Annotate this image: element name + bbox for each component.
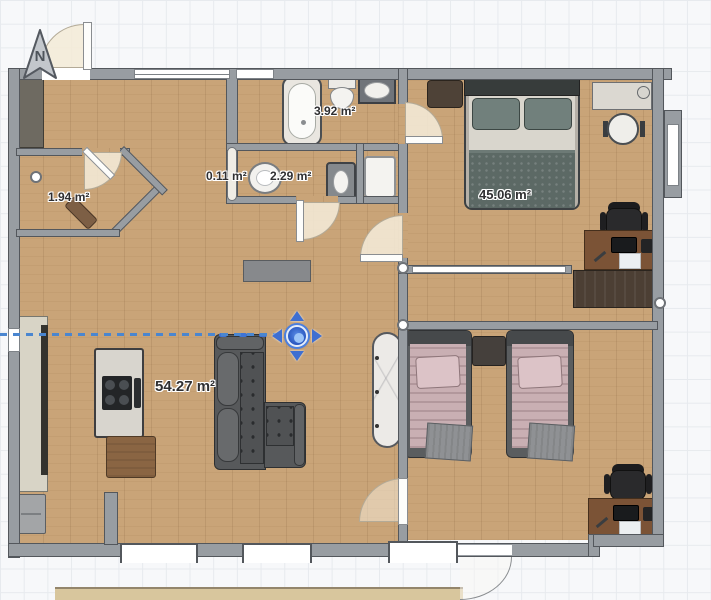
wall-node-2[interactable] [397,262,409,274]
wall-node-1[interactable] [30,171,42,183]
sofa-back-cushion-1 [217,352,239,406]
pen-1 [594,251,607,262]
pen-2 [596,517,609,528]
wall-recess-2 [242,543,312,563]
bedroom-door-leaf [405,136,443,144]
cooktop [102,376,132,410]
closet-wardrobe[interactable] [573,270,656,308]
pillow-left [472,98,520,130]
wall-top[interactable] [8,68,672,80]
office-chair-1-arm-right [642,212,648,232]
mirror-knob-3 [375,424,379,428]
single-bed-2[interactable] [506,330,574,458]
bathtub-basin [288,83,316,139]
desk-2[interactable] [588,498,662,538]
sofa-back-cushion-2 [217,408,239,462]
burner-4 [119,395,129,405]
window-entry[interactable] [134,69,230,79]
sink-basin [364,82,390,99]
dressing-table[interactable] [592,82,652,110]
nightstand[interactable] [472,336,506,366]
kitchen-island[interactable] [94,348,144,438]
wall-left[interactable] [8,68,20,558]
sofa-seat-cushions [240,352,264,464]
burner-2 [119,380,129,390]
area-label-bathroom-small: 2.29 m² [270,169,311,183]
area-label-shaft: 0.11 m² [206,169,247,183]
single-bed-1-pillow [415,355,461,389]
kitchen-counter[interactable] [16,316,48,492]
exterior-door-gap [458,545,512,555]
move-down-arrow-icon[interactable] [290,351,304,361]
compass-letter: N [35,48,46,65]
wall-node-3[interactable] [397,319,409,331]
sofa-armrest-right [294,404,305,466]
window-bathroom[interactable] [236,69,274,79]
exterior-door-arc[interactable] [460,557,512,600]
paper-1 [619,253,641,269]
office-chair-2[interactable] [610,470,646,500]
hallway-door-leaf [360,254,403,262]
wall-twinroom-top[interactable] [398,321,658,330]
desk-1[interactable] [584,230,658,270]
area-label-bedroom: 45.06 m² [479,187,531,202]
move-gizmo-dot [294,333,304,343]
mirror-knob-2 [375,390,379,394]
fridge[interactable] [16,494,46,534]
wall-niche-stub[interactable] [104,492,118,545]
move-gizmo[interactable] [272,311,322,361]
double-bed-headboard [464,78,580,96]
single-bed-2-throw [527,422,575,461]
single-bed-1-throw [425,422,473,461]
sink-vanity[interactable] [358,77,396,104]
mirror-knob-1 [375,356,379,360]
wall-recess-1 [120,543,198,563]
entry-wardrobe[interactable] [16,78,44,148]
laptop-2 [613,505,639,521]
area-label-living: 54.27 m² [155,378,215,395]
table-mirror [637,86,650,99]
toilet-2-bowl [333,170,349,194]
vanity-stool[interactable] [607,113,639,145]
cooktop-controls [134,378,141,408]
twinroom-door-leaf [398,478,408,525]
wall-bathroom-divider[interactable] [226,143,404,151]
wall-wc-bottom[interactable] [16,229,120,237]
sliding-closet-door[interactable] [412,266,566,273]
floorplan-canvas: 1.94 m² 0.11 m² 2.29 m² 3.92 m² 45.06 m²… [0,0,711,600]
single-bed-1[interactable] [404,330,472,458]
window-living-left[interactable] [8,328,20,352]
wall-bottom-right[interactable] [593,534,664,547]
window-bay[interactable] [667,124,679,186]
burner-1 [105,380,115,390]
fridge-seam [21,513,41,515]
bathroom-cabinet[interactable] [364,156,396,198]
bathroom-door-leaf [296,200,304,242]
entry-door-leaf [83,22,92,70]
area-label-bathroom-main: 3.92 m² [314,104,355,118]
selection-guide-line [0,333,286,336]
bathtub-drain [301,120,306,125]
move-up-arrow-icon[interactable] [290,311,304,321]
sofa-armrest-top [216,336,264,350]
single-bed-2-pillow [517,355,563,389]
wall-toilet-divider[interactable] [356,143,364,204]
stool-arm-right [640,121,645,137]
area-label-wc: 1.94 m² [48,190,89,204]
floor-strip-below [55,587,463,600]
sofa-chaise-cushion [266,406,294,446]
wall-node-4[interactable] [654,297,666,309]
sideboard[interactable] [243,260,311,282]
move-left-arrow-icon[interactable] [272,329,282,343]
compass: N [20,28,60,80]
counter-edge [41,325,48,475]
move-right-arrow-icon[interactable] [312,329,322,343]
toilet-2[interactable] [326,162,356,200]
burner-3 [105,395,115,405]
laptop-1 [611,237,637,253]
wall-recess-3 [388,541,458,563]
move-gizmo-center[interactable] [286,325,308,347]
kitchen-table[interactable] [106,436,156,478]
bedroom-bench[interactable] [427,80,463,108]
pillow-right [524,98,572,130]
